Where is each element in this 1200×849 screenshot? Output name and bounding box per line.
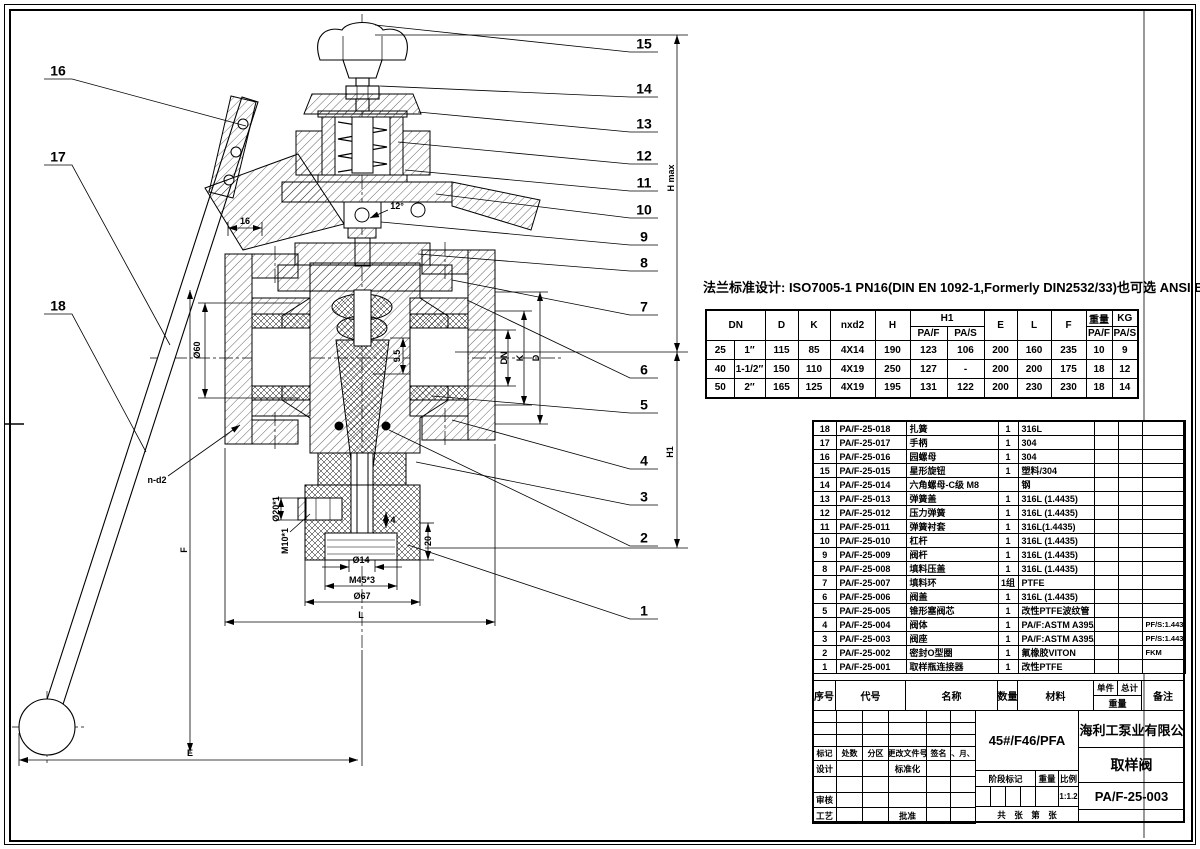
dim-table-cell: 2″ (734, 379, 765, 398)
bom-cell: PA/F-25-008 (836, 562, 906, 576)
dim-table-cell: 18 (1086, 379, 1112, 398)
title-block-cell: 年、月、日 (950, 746, 976, 761)
flange-standard-note: 法兰标准设计: ISO7005-1 PN16(DIN EN 1092-1,For… (703, 277, 1200, 296)
bom-cell: 锥形塞阀芯 (906, 604, 998, 618)
dim-label: E (187, 748, 193, 758)
bom-cell: 316L (1.4435) (1018, 492, 1094, 506)
bom-cell: 17 (813, 436, 836, 450)
bom-cell: PF/S:1.4435 (1142, 632, 1185, 646)
bom-cell: PF/S:1.4435 (1142, 618, 1185, 632)
bom-cell: 1 (998, 506, 1018, 520)
bom-cell: 1 (998, 450, 1018, 464)
bom-cell (1118, 646, 1142, 660)
packing-column (318, 453, 406, 485)
bom-cell: 1 (998, 534, 1018, 548)
bom-cell: 1 (998, 436, 1018, 450)
bom-cell: 1 (998, 618, 1018, 632)
bom-cell (1118, 604, 1142, 618)
balloon-number: 2 (640, 530, 648, 546)
bom-cell (998, 478, 1018, 492)
bom-cell (1094, 618, 1118, 632)
bom-cell: 扎簧 (906, 421, 998, 436)
bom-cell: 1 (998, 646, 1018, 660)
dim-table-cell: 165 (765, 379, 798, 398)
dim-table-cell: 85 (798, 341, 830, 360)
bom-cell: PA/F-25-012 (836, 506, 906, 520)
title-block-cell (1035, 786, 1059, 807)
dim-label: 20 (423, 536, 433, 546)
balloon-number: 11 (637, 175, 652, 191)
bom-cell (1118, 421, 1142, 436)
bom-cell (1142, 548, 1185, 562)
bom-cell: 316L (1.4435) (1018, 506, 1094, 520)
dim-table-cell: D (765, 310, 798, 341)
bom-cell: 304 (1018, 436, 1094, 450)
title-block-cell: 上海利工泵业有限公司 (1078, 710, 1185, 748)
title-block-cell: 工艺 (812, 807, 837, 824)
bom-cell: 316L (1.4435) (1018, 534, 1094, 548)
title-block-cell: 材料 (1017, 680, 1094, 711)
title-block-cell: 名称 (905, 680, 998, 711)
bom-cell (1094, 450, 1118, 464)
bom-cell: PA/F-25-018 (836, 421, 906, 436)
bom-cell: PA/F-25-014 (836, 478, 906, 492)
dim-label: 4 (390, 515, 395, 525)
bom-cell: 阀座 (906, 632, 998, 646)
dim-label: 16 (240, 216, 250, 226)
bom-cell (1094, 421, 1118, 436)
title-block-cell (836, 760, 863, 777)
title-block-cell: 单件 (1093, 680, 1118, 696)
title-block-cell: 阶段标记 (975, 770, 1036, 787)
bottom-connector (298, 485, 420, 560)
dim-label: H max (666, 164, 676, 191)
bom-cell (1118, 520, 1142, 534)
dim-table-cell: 200 (984, 379, 1017, 398)
dim-table-cell: F (1051, 310, 1086, 341)
balloon-number: 10 (636, 202, 652, 218)
title-block-cell (836, 776, 863, 793)
spring-chamber (296, 94, 430, 182)
bom-cell (1142, 506, 1185, 520)
bom-cell: 1组 (998, 576, 1018, 590)
bom-cell: 5 (813, 604, 836, 618)
bom-cell (1142, 450, 1185, 464)
bom-cell (1094, 548, 1118, 562)
bom-cell: 密封O型圈 (906, 646, 998, 660)
bom-cell: PA/F-25-015 (836, 464, 906, 478)
title-block-cell (836, 792, 863, 808)
bom-cell: 1 (813, 660, 836, 674)
dim-table-cell: 14 (1112, 379, 1138, 398)
dim-table-cell: 125 (798, 379, 830, 398)
bom-cell: PA/F-25-004 (836, 618, 906, 632)
balloon-number: 15 (636, 36, 652, 52)
dim-label: L (358, 610, 364, 620)
bom-cell (1094, 520, 1118, 534)
bom-cell: 10 (813, 534, 836, 548)
title-block-cell: 重量 (1093, 695, 1142, 711)
bom-cell: FKM (1142, 646, 1185, 660)
dim-table-cell: 195 (875, 379, 910, 398)
bom-cell (1142, 534, 1185, 548)
dim-table-cell: 1-1/2″ (734, 360, 765, 379)
bom-cell: PA/F-25-011 (836, 520, 906, 534)
dim-label: n-d2 (148, 475, 167, 485)
dim-table-cell: 10 (1086, 341, 1112, 360)
bom-cell: PA/F:ASTM A395/PFA (1018, 632, 1094, 646)
bom-cell (1094, 660, 1118, 674)
title-block-cell (990, 786, 1006, 807)
dim-table-cell: 重量 (1086, 310, 1112, 327)
bom-cell: 304 (1018, 450, 1094, 464)
bom-cell: 改性PTFE (1018, 660, 1094, 674)
balloon-number: 14 (636, 81, 652, 97)
bom-cell (1094, 562, 1118, 576)
dim-table-cell: H (875, 310, 910, 341)
bom-cell: 阀盖 (906, 590, 998, 604)
bom-cell: PA/F-25-006 (836, 590, 906, 604)
balloon-number: 9 (640, 229, 648, 245)
bom-cell: 1 (998, 660, 1018, 674)
dim-table-cell: - (947, 360, 984, 379)
dim-table-cell: DN (706, 310, 765, 341)
bom-cell (1118, 464, 1142, 478)
balloon-number: 8 (640, 255, 648, 271)
dim-table-cell: 235 (1051, 341, 1086, 360)
bom-cell: PA/F-25-009 (836, 548, 906, 562)
title-block-cell (975, 786, 991, 807)
bom-cell (1094, 464, 1118, 478)
dim-table-cell: 18 (1086, 360, 1112, 379)
bom-cell (1142, 436, 1185, 450)
bom-cell: 2 (813, 646, 836, 660)
dim-table-cell: 250 (875, 360, 910, 379)
bom-cell (1142, 421, 1185, 436)
dim-table-cell: PA/S (1112, 327, 1138, 341)
balloon-number: 6 (640, 362, 648, 378)
bom-cell (1094, 632, 1118, 646)
bom-cell: 8 (813, 562, 836, 576)
bom-cell: 钢 (1018, 478, 1094, 492)
balloon-number: 3 (640, 489, 648, 505)
bom-cell: 6 (813, 590, 836, 604)
dim-label: M10*1 (280, 528, 290, 554)
bom-cell: 7 (813, 576, 836, 590)
bom-cell (1118, 660, 1142, 674)
dim-table-cell: 4X14 (830, 341, 875, 360)
title-block-cell (836, 807, 863, 824)
bom-cell: 取样瓶连接器 (906, 660, 998, 674)
dim-label: Ø67 (353, 591, 370, 601)
title-block-cell (950, 807, 976, 824)
dim-table-cell: PA/F (1086, 327, 1112, 341)
bom-cell: 弹簧盖 (906, 492, 998, 506)
bom-cell: 星形旋钮 (906, 464, 998, 478)
dim-table-cell: 131 (910, 379, 947, 398)
title-block-cell: 代号 (835, 680, 906, 711)
title-block-cell: 设计 (812, 760, 837, 777)
bom-cell (1142, 478, 1185, 492)
dim-label: F (179, 547, 189, 553)
bom-cell (1094, 646, 1118, 660)
bom-cell (1118, 590, 1142, 604)
bom-cell: 1 (998, 464, 1018, 478)
bom-cell: 氟橡胶VITON (1018, 646, 1094, 660)
dim-table-cell: 40 (706, 360, 734, 379)
dim-table-cell: E (984, 310, 1017, 341)
dim-table-cell: L (1017, 310, 1051, 341)
bom-cell: 316L (1.4435) (1018, 562, 1094, 576)
title-block-cell: 备注 (1141, 680, 1185, 711)
title-block-cell: 45#/F46/PFA (975, 710, 1079, 771)
title-block-cell (1078, 809, 1185, 823)
title-block-cell (862, 807, 889, 824)
dim-table-cell: 190 (875, 341, 910, 360)
bom-cell (1118, 548, 1142, 562)
bom-cell: PA/F:ASTM A395/PFA (1018, 618, 1094, 632)
bom-cell: 1 (998, 590, 1018, 604)
title-block-cell: 更改文件号 (888, 746, 927, 761)
bom-cell (1118, 562, 1142, 576)
dim-label: 12° (390, 201, 404, 211)
bom-cell: 9 (813, 548, 836, 562)
title-block-cell (888, 792, 927, 808)
title-block-cell (950, 776, 976, 793)
bom-cell (1118, 450, 1142, 464)
dim-table-cell: PA/F (910, 327, 947, 341)
bom-cell: PTFE (1018, 576, 1094, 590)
title-block-cell: 签名 (926, 746, 951, 761)
bom-cell (1118, 534, 1142, 548)
bom-cell (1118, 576, 1142, 590)
dim-table-cell: 4X19 (830, 379, 875, 398)
title-block-cell: PA/F-25-003 (1078, 782, 1185, 810)
title-block-cell: 处数 (836, 746, 863, 761)
dim-table-cell: 115 (765, 341, 798, 360)
dim-table-cell: 175 (1051, 360, 1086, 379)
bom-cell (1142, 660, 1185, 674)
dim-table-cell: H1 (910, 310, 984, 327)
bom-cell (1142, 492, 1185, 506)
bom-cell: 1 (998, 492, 1018, 506)
bom-cell: 杠杆 (906, 534, 998, 548)
bom-cell (1094, 590, 1118, 604)
balloon-number: 16 (50, 63, 66, 79)
bom-cell (1118, 618, 1142, 632)
bom-cell: 16 (813, 450, 836, 464)
title-block-cell: 审核 (812, 792, 837, 808)
dim-table-cell: 12 (1112, 360, 1138, 379)
bom-cell: 阀杆 (906, 548, 998, 562)
dim-label: H1 (665, 446, 675, 458)
bom-cell (1094, 478, 1118, 492)
dim-table-cell: nxd2 (830, 310, 875, 341)
bom-cell: 1 (998, 421, 1018, 436)
dim-table-cell: 122 (947, 379, 984, 398)
bom-cell: 13 (813, 492, 836, 506)
title-block-cell (950, 792, 976, 808)
bom-cell: 1 (998, 604, 1018, 618)
dim-table-cell: 127 (910, 360, 947, 379)
bom-cell: 316L (1.4435) (1018, 590, 1094, 604)
title-block-cell (926, 792, 951, 808)
bom-cell (1142, 604, 1185, 618)
title-block-cell (888, 776, 927, 793)
title-block-cell (926, 760, 951, 777)
title-block-cell (862, 760, 889, 777)
balloon-number: 13 (636, 116, 652, 132)
dim-table-cell: 110 (798, 360, 830, 379)
title-block-cell: 比例 (1058, 770, 1079, 787)
dim-table-cell: 4X19 (830, 360, 875, 379)
title-block-cell (926, 776, 951, 793)
bom-cell (1118, 436, 1142, 450)
bom-cell: 阀体 (906, 618, 998, 632)
dim-table-cell: 50 (706, 379, 734, 398)
title-block-cell (862, 792, 889, 808)
title-block-cell: 标记 (812, 746, 837, 761)
title-block-cell (812, 776, 837, 793)
bom-cell: PA/F-25-007 (836, 576, 906, 590)
bom-cell: 1 (998, 548, 1018, 562)
dim-table-cell: 200 (1017, 360, 1051, 379)
title-block-cell: 1:1.2 (1058, 786, 1079, 807)
balloon-number: 4 (640, 453, 648, 469)
bom-cell (1142, 576, 1185, 590)
dim-label: Ø20*1 (271, 496, 281, 522)
title-block-cell: 重量 (1035, 770, 1059, 787)
bom-cell (1094, 534, 1118, 548)
bom-cell: PA/F-25-013 (836, 492, 906, 506)
dim-label: M45*3 (349, 575, 375, 585)
dim-label: K (515, 355, 525, 362)
dim-table-cell: 200 (984, 360, 1017, 379)
dim-table-cell: K (798, 310, 830, 341)
bom-cell: 12 (813, 506, 836, 520)
bom-cell: 六角螺母-C级 M8 (906, 478, 998, 492)
title-block-cell: 标准化 (888, 760, 927, 777)
dim-table-cell: PA/S (947, 327, 984, 341)
balloon-number: 12 (636, 148, 652, 164)
bom-cell: 填料环 (906, 576, 998, 590)
title-block-cell (926, 807, 951, 824)
bom-cell (1118, 478, 1142, 492)
bom-cell: 4 (813, 618, 836, 632)
dim-label: DN (499, 352, 509, 365)
title-block-cell (1005, 786, 1021, 807)
balloon-number: 17 (50, 149, 66, 165)
bom-cell: PA/F-25-010 (836, 534, 906, 548)
balloon-number: 7 (640, 299, 648, 315)
bom-cell: PA/F-25-005 (836, 604, 906, 618)
balloon-number: 1 (640, 603, 648, 619)
bom-cell: 18 (813, 421, 836, 436)
bom-cell (1142, 520, 1185, 534)
bom-cell (1118, 506, 1142, 520)
dim-table-cell: 230 (1017, 379, 1051, 398)
dim-label: 9.5 (392, 350, 402, 363)
flange-dimension-table: DNDKnxd2HH1ELF重量KGPA/FPA/SPA/FPA/S251″11… (705, 309, 1139, 399)
title-block-cell: 共 张 第 张 (975, 806, 1079, 823)
dim-label: Ø60 (192, 341, 202, 358)
bom-cell: 压力弹簧 (906, 506, 998, 520)
bom-cell: 14 (813, 478, 836, 492)
bom-cell (1118, 632, 1142, 646)
bom-cell: 3 (813, 632, 836, 646)
title-block-cell: 总计 (1117, 680, 1142, 696)
dim-label: D (531, 355, 541, 362)
dim-table-cell: 1″ (734, 341, 765, 360)
title-block-cell: 序号 (812, 680, 836, 711)
engineering-drawing-page: 法兰标准设计: ISO7005-1 PN16(DIN EN 1092-1,For… (0, 0, 1200, 849)
bom-parts-table: 18PA/F-25-018扎簧1316L17PA/F-25-017手柄13041… (812, 420, 1186, 674)
bom-cell (1094, 506, 1118, 520)
dim-table-cell: 25 (706, 341, 734, 360)
bom-cell: 弹簧衬套 (906, 520, 998, 534)
bom-cell: 316L (1018, 421, 1094, 436)
bom-cell: 316L(1.4435) (1018, 520, 1094, 534)
bom-cell (1094, 576, 1118, 590)
title-block-cell: 批准 (888, 807, 927, 824)
dim-table-cell: 230 (1051, 379, 1086, 398)
bom-cell (1094, 604, 1118, 618)
bom-cell: 11 (813, 520, 836, 534)
bom-cell (1094, 436, 1118, 450)
title-block-cell (862, 776, 889, 793)
bom-cell (1142, 590, 1185, 604)
bom-cell: 塑料/304 (1018, 464, 1094, 478)
bom-cell: PA/F-25-003 (836, 632, 906, 646)
bom-cell (1118, 492, 1142, 506)
bom-cell: PA/F-25-016 (836, 450, 906, 464)
dim-table-cell: 150 (765, 360, 798, 379)
bom-cell: 15 (813, 464, 836, 478)
bom-cell: PA/F-25-017 (836, 436, 906, 450)
bom-cell: 填料压盖 (906, 562, 998, 576)
bom-cell: 1 (998, 632, 1018, 646)
dim-table-cell: KG (1112, 310, 1138, 327)
dim-table-cell: 160 (1017, 341, 1051, 360)
bom-cell: 手柄 (906, 436, 998, 450)
dim-table-cell: 123 (910, 341, 947, 360)
bom-cell: PA/F-25-002 (836, 646, 906, 660)
bom-cell (1094, 492, 1118, 506)
title-block-cell (950, 760, 976, 777)
bom-cell: 1 (998, 520, 1018, 534)
bom-cell: PA/F-25-001 (836, 660, 906, 674)
bom-cell: 园螺母 (906, 450, 998, 464)
dim-label: Ø14 (352, 555, 369, 565)
title-block-cell: 取样阀 (1078, 747, 1185, 783)
bom-cell: 316L (1.4435) (1018, 548, 1094, 562)
dim-table-cell: 200 (984, 341, 1017, 360)
bom-cell (1142, 464, 1185, 478)
dim-table-cell: 9 (1112, 341, 1138, 360)
title-block-cell: 数量 (997, 680, 1018, 711)
title-block-cell (1020, 786, 1036, 807)
balloon-number: 18 (50, 298, 66, 314)
dim-table-cell: 106 (947, 341, 984, 360)
bom-cell (1142, 562, 1185, 576)
title-block-cell: 分区 (862, 746, 889, 761)
bom-cell: 1 (998, 562, 1018, 576)
bom-cell: 改性PTFE波纹管 (1018, 604, 1094, 618)
balloon-number: 5 (640, 397, 648, 413)
